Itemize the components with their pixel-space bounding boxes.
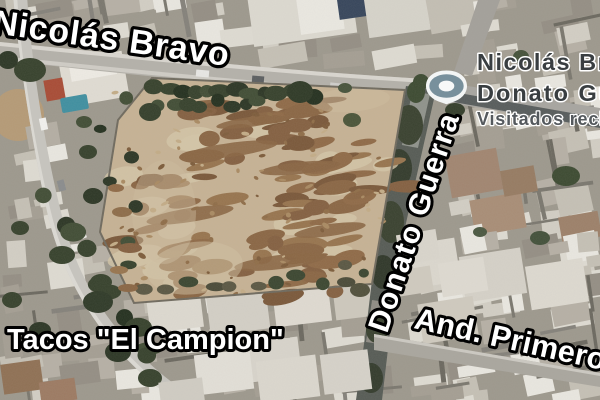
svg-text:Tacos "El Campion": Tacos "El Campion" (7, 324, 284, 356)
svg-text:Nicolás Bravo &: Nicolás Bravo & (477, 49, 600, 75)
svg-text:Visitados recientemente: Visitados recientemente (477, 109, 600, 129)
svg-text:Donato Guerra: Donato Guerra (477, 80, 600, 106)
